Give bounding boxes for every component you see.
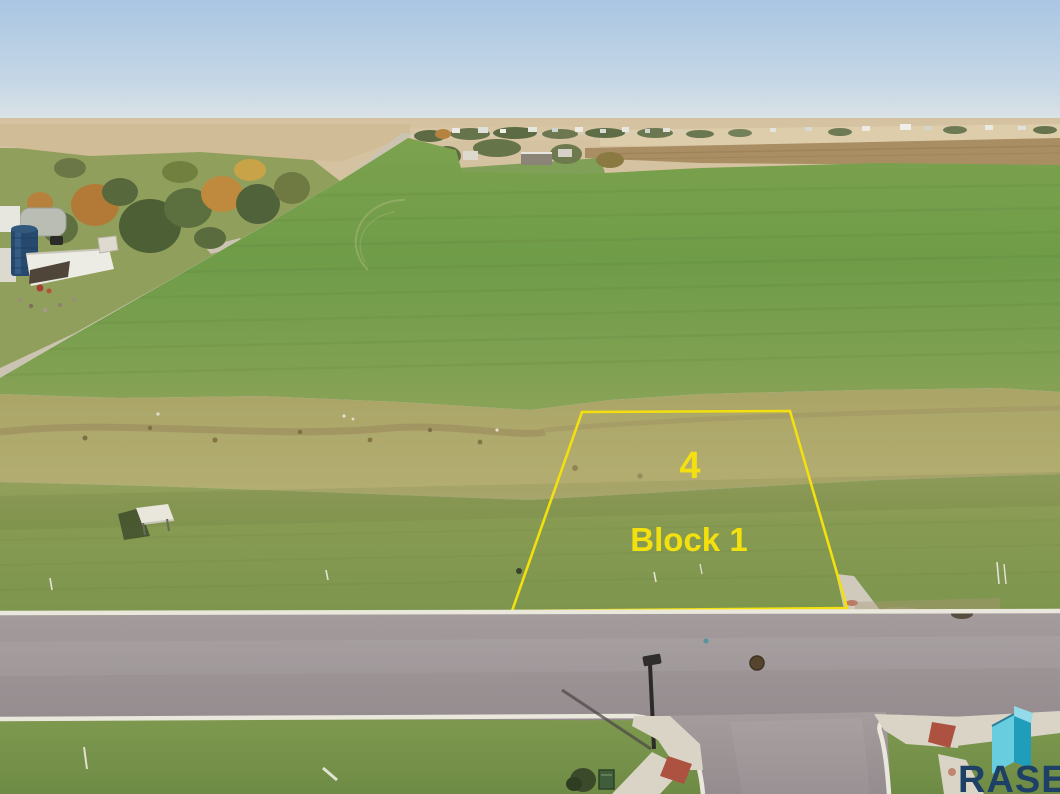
sky (0, 0, 1060, 134)
top-curb (0, 611, 1060, 613)
lot-number-label: 4 (679, 445, 700, 487)
manhole-cover (750, 656, 764, 670)
utility-box (599, 770, 614, 789)
lot-block-label: Block 1 (630, 521, 747, 558)
aerial-photo: 4 Block 1 (0, 0, 1060, 794)
rase-logo-text: RASE (958, 759, 1060, 794)
lot-grass (0, 472, 1060, 616)
paint-mark (704, 639, 709, 644)
